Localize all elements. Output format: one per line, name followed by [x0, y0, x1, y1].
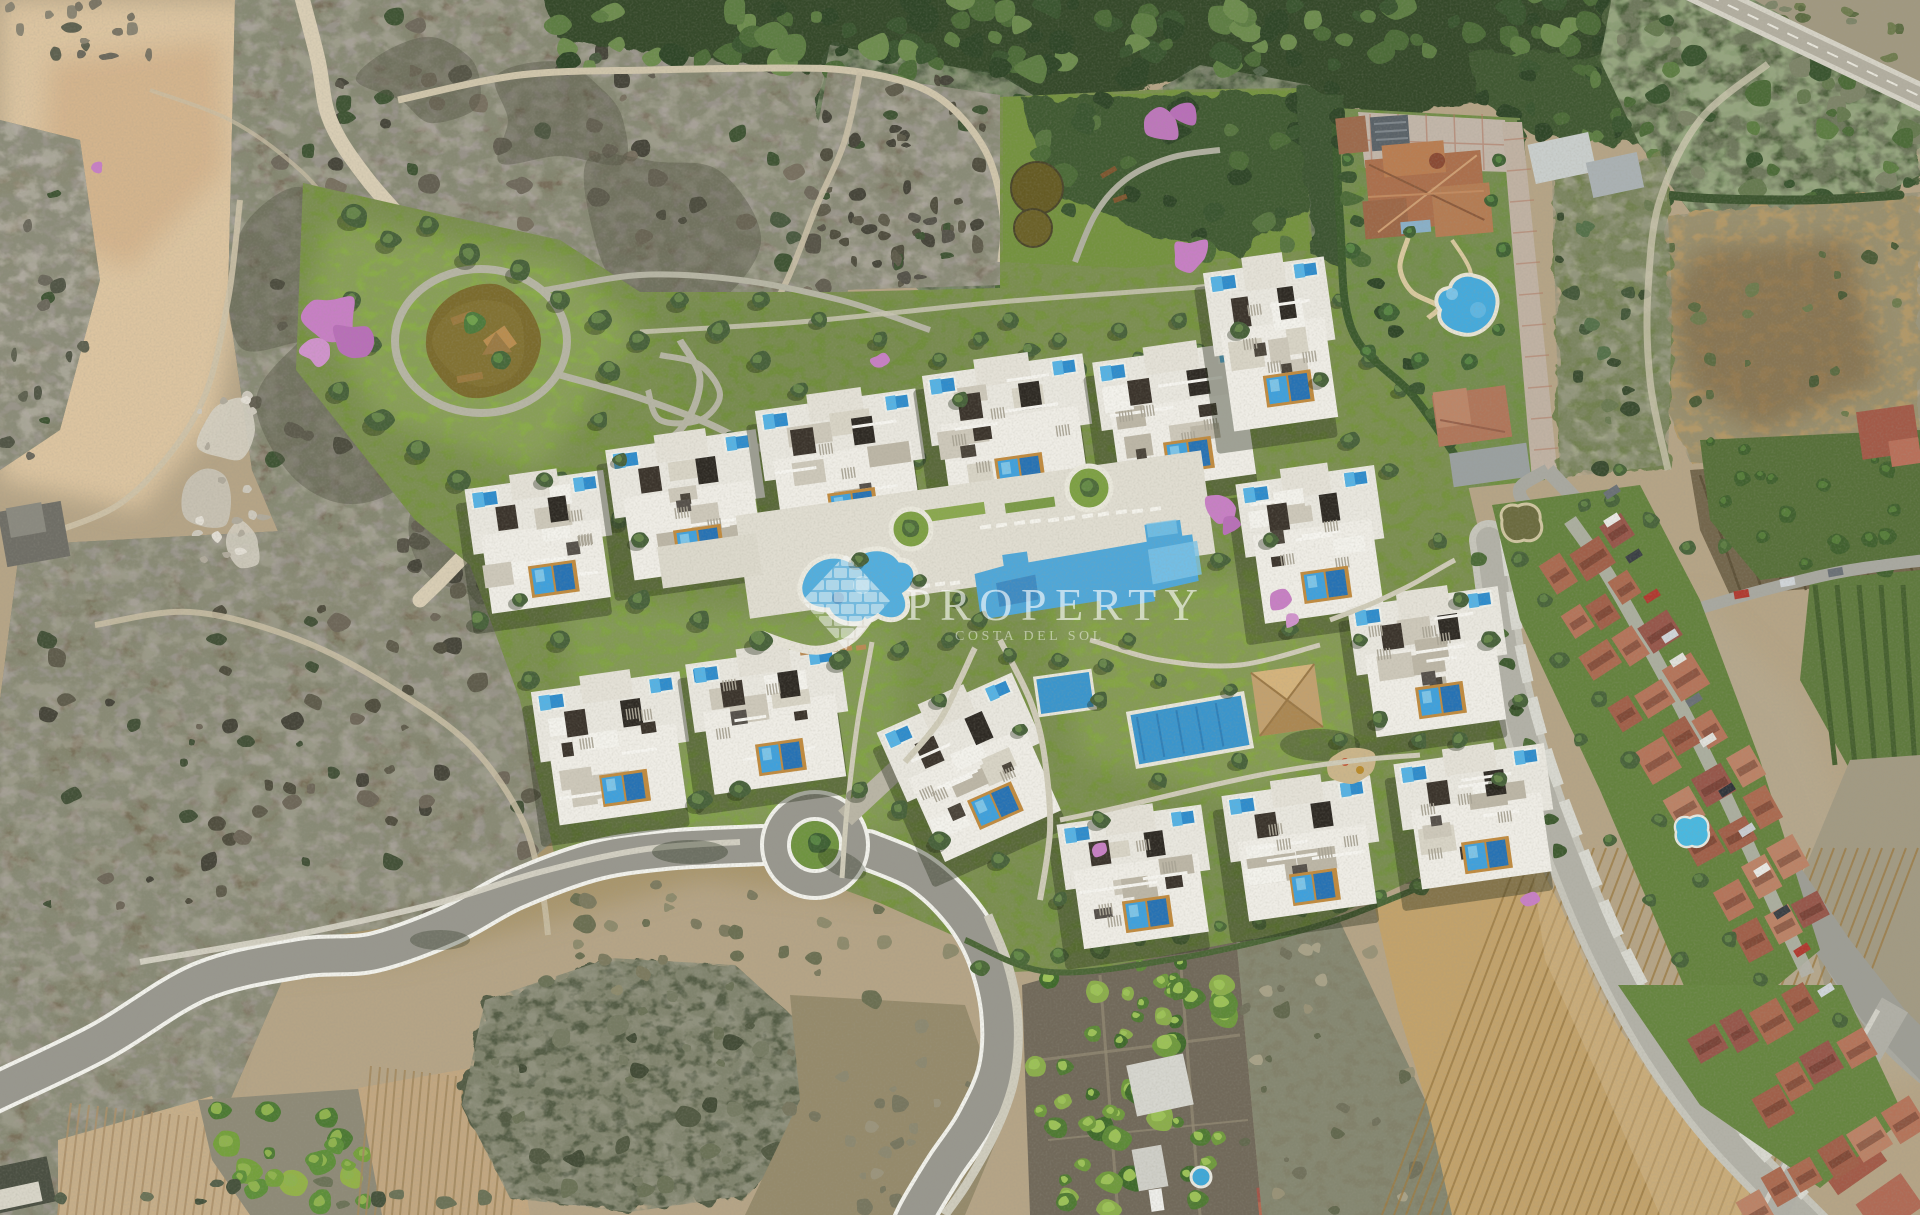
svg-text:COSTA DEL SOL: COSTA DEL SOL	[955, 629, 1105, 644]
svg-text:PROPERTY: PROPERTY	[906, 579, 1206, 630]
